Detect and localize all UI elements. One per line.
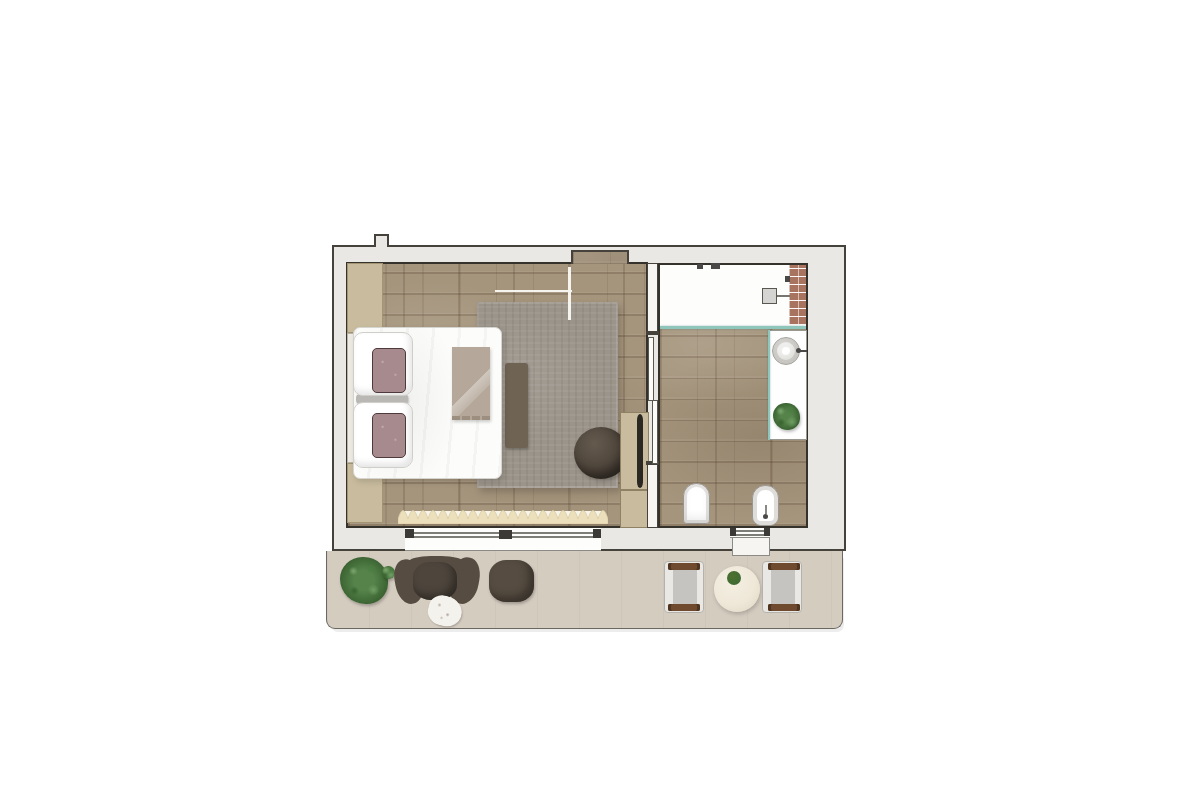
bidet-drain-line: [765, 505, 767, 514]
curtain-valance: [398, 502, 608, 524]
partition-wall-lower: [647, 464, 658, 528]
balcony-plant: [340, 557, 388, 604]
window-tick: [405, 529, 414, 538]
shower-valve: [785, 276, 790, 282]
lounge-chair-seat: [413, 562, 457, 600]
tv-cabinet: [620, 412, 649, 528]
patio-chair-left: [664, 561, 704, 613]
patio-chair-armrest: [668, 604, 700, 611]
headboard-cabinet-top: [347, 263, 383, 333]
ottoman: [489, 560, 534, 602]
wall-bump: [374, 234, 389, 247]
accent-pillow-1: [372, 348, 406, 393]
tv-screen: [637, 414, 643, 488]
window-tick: [764, 528, 770, 536]
throw-blanket: [452, 347, 490, 420]
wall-hung-toilet: [683, 483, 710, 524]
vanity-glass-edge: [768, 330, 770, 440]
bench-runner: [505, 363, 528, 448]
shower-arm: [777, 295, 790, 297]
rain-shower-head: [762, 288, 777, 304]
window-sill-box: [732, 537, 770, 556]
patio-chair-right: [762, 561, 802, 613]
shower-door-tick-2: [711, 263, 720, 269]
window-tick: [730, 528, 736, 536]
patio-chair-armrest: [768, 563, 800, 570]
tv-cabinet-divider: [621, 489, 648, 491]
counter-plant: [773, 403, 800, 430]
patio-chair-armrest: [768, 604, 800, 611]
sliding-door-panel-a: [648, 337, 654, 401]
faucet: [796, 348, 801, 353]
table-plant-pot: [727, 571, 741, 585]
patio-chair-seat: [771, 570, 795, 606]
entry-floor: [571, 250, 629, 264]
sliding-door-panel-b: [652, 400, 658, 464]
entry-side-panel: [568, 267, 571, 320]
accent-pillow-2: [372, 413, 406, 458]
partition-wall-upper: [647, 263, 658, 333]
patio-chair-armrest: [668, 563, 700, 570]
coat-rail-line: [495, 290, 572, 292]
bidet-faucet-dot: [763, 514, 768, 519]
window-tick: [499, 530, 512, 539]
patio-chair-seat: [673, 570, 697, 606]
tiled-wall-strip: [789, 265, 806, 325]
floor-plan-canvas: [0, 0, 1200, 800]
door-jamb-cap-top: [646, 331, 659, 335]
bedroom-window: [405, 528, 601, 551]
window-tick: [593, 529, 601, 538]
glass-partition: [660, 326, 806, 329]
shower-door-tick-1: [697, 264, 703, 269]
